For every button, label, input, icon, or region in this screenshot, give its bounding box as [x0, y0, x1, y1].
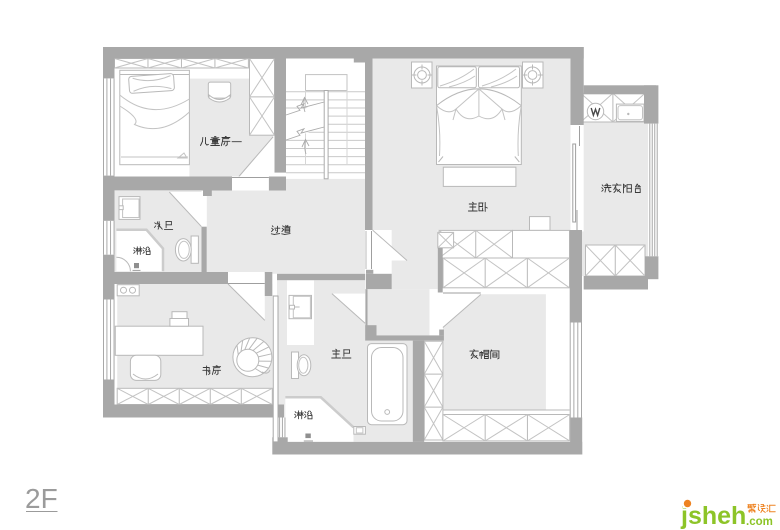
svg-text:2F: 2F: [25, 483, 58, 514]
svg-text:.com: .com: [746, 516, 773, 528]
